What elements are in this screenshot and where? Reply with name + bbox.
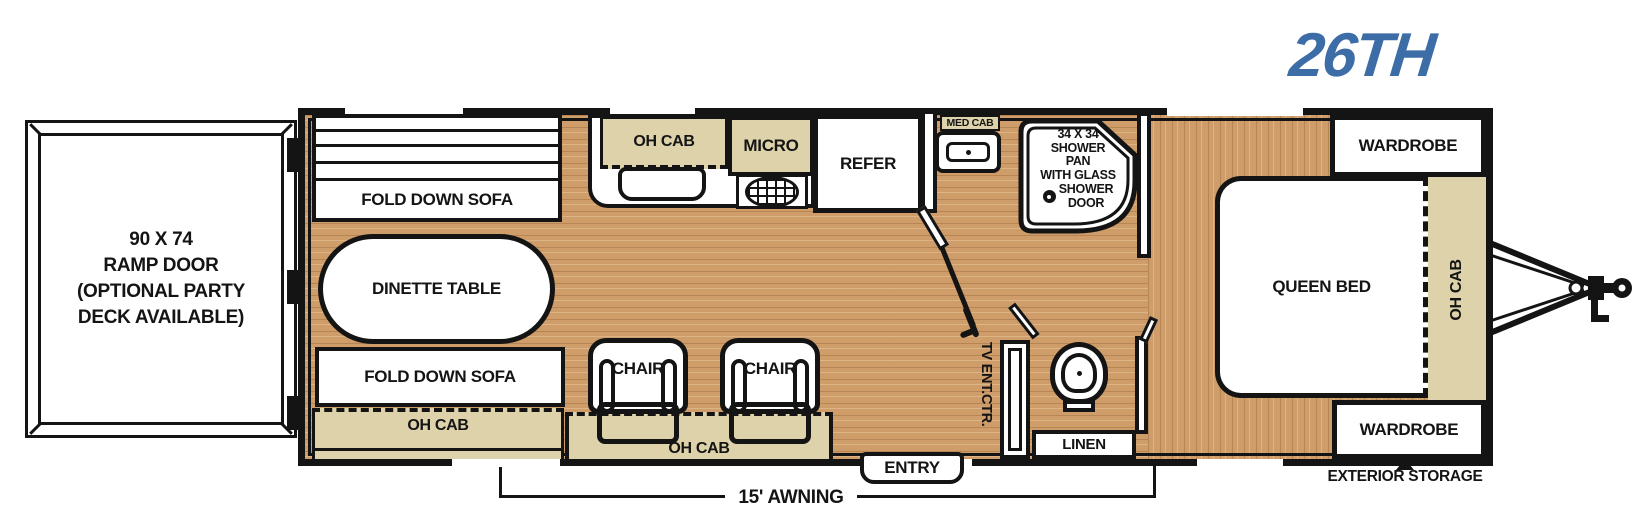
fold-down-sofa-top-label: FOLD DOWN SOFA xyxy=(316,180,558,220)
ramp-door: 90 X 74 RAMP DOOR (OPTIONAL PARTY DECK A… xyxy=(25,120,297,438)
window-bottom-garage xyxy=(452,459,560,467)
shower-wall xyxy=(1137,112,1151,258)
chair-right-label: CHAIR xyxy=(725,359,815,379)
chair-right: CHAIR xyxy=(720,338,822,444)
cabinet-line xyxy=(315,448,561,451)
kitchen-sink xyxy=(618,167,706,201)
sofa-slat xyxy=(316,161,558,164)
chair-seat xyxy=(597,402,679,444)
ramp-miter-tr xyxy=(280,123,293,136)
awning-line-left xyxy=(499,495,725,498)
bath-sink-basin xyxy=(946,142,990,162)
microwave: MICRO xyxy=(728,116,814,176)
shower-label: 34 X 34 SHOWER PAN WITH GLASS SHOWER DOO… xyxy=(1020,128,1136,210)
wardrobe-top: WARDROBE xyxy=(1330,115,1486,177)
shower-head-icon xyxy=(1043,190,1056,203)
drain-icon xyxy=(966,150,971,155)
chair-seat xyxy=(729,402,811,444)
fold-down-sofa-bottom: FOLD DOWN SOFA xyxy=(315,347,565,407)
garage-overhead-cabinet: OH CAB xyxy=(312,408,564,459)
sofa-slat xyxy=(316,144,558,147)
ramp-door-label: 90 X 74 RAMP DOOR (OPTIONAL PARTY DECK A… xyxy=(42,137,280,421)
awning-line-right xyxy=(857,495,1156,498)
sofa-slat xyxy=(316,129,558,132)
model-badge: 26TH xyxy=(1286,20,1437,91)
toilet xyxy=(1050,342,1110,416)
exterior-storage-label: EXTERIOR STORAGE xyxy=(1315,468,1495,486)
medicine-cabinet: MED CAB xyxy=(940,115,1000,131)
awning-riser-right xyxy=(1153,466,1156,498)
bath-sink xyxy=(935,131,1001,173)
queen-bed: QUEEN BED xyxy=(1215,176,1428,398)
fold-down-sofa-top: FOLD DOWN SOFA xyxy=(312,114,562,222)
burner-icon xyxy=(745,176,799,208)
window-top-bedroom xyxy=(1167,108,1303,116)
tv-entertainment-center-label: TV ENT.CTR. xyxy=(976,342,994,462)
awning-label: 15' AWNING xyxy=(725,487,857,509)
refrigerator: REFER xyxy=(813,114,923,213)
ramp-miter-bl xyxy=(29,422,42,435)
chair-left-label: CHAIR xyxy=(593,359,683,379)
awning-riser-left xyxy=(499,466,502,498)
garage-overhead-cabinet-label: OH CAB xyxy=(315,417,561,435)
bath-wall-right xyxy=(1135,336,1148,434)
ramp-miter-tl xyxy=(29,123,42,136)
kitchen-overhead-cabinet: OH CAB xyxy=(600,116,728,169)
toilet-base xyxy=(1063,400,1095,412)
floorplan-26th: 26TH 15' AWNING 90 X 74 RAMP DOOR (OPTIO… xyxy=(0,0,1643,532)
trailer-hitch xyxy=(1488,233,1643,343)
tv-entertainment-center xyxy=(1000,340,1030,459)
flush-icon xyxy=(1077,371,1082,376)
wardrobe-bottom: WARDROBE xyxy=(1332,400,1486,459)
toilet-bowl xyxy=(1050,342,1108,404)
bedroom-overhead-cabinet-label: OH CAB xyxy=(1448,220,1468,360)
dinette-table: DINETTE TABLE xyxy=(318,234,555,344)
toilet-bowl-inner xyxy=(1061,353,1097,393)
entry-door-label: ENTRY xyxy=(860,452,964,484)
linen-cabinet: LINEN xyxy=(1032,430,1136,459)
stove xyxy=(736,174,808,209)
tv-cabinet-inner xyxy=(1008,348,1022,451)
window-bottom-bedroom xyxy=(1197,459,1283,467)
chair-left: CHAIR xyxy=(588,338,690,444)
